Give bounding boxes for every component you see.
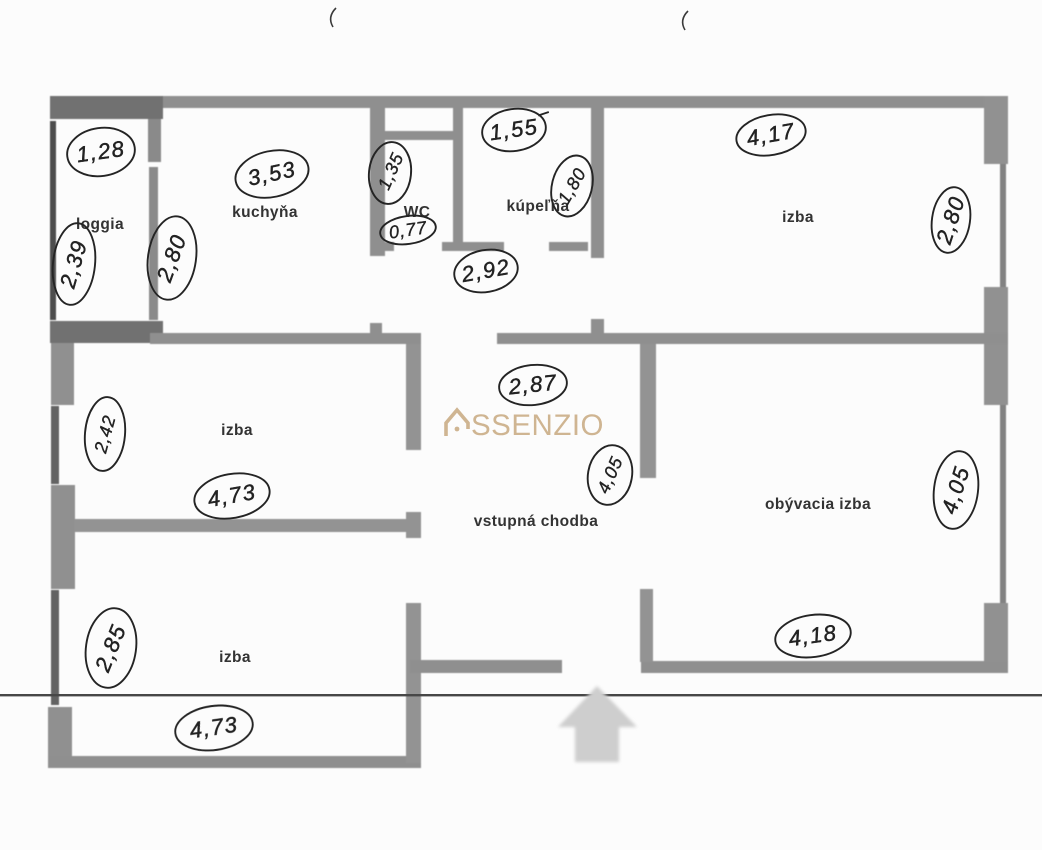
svg-text:izba: izba: [219, 649, 251, 666]
svg-text:SSENZIO: SSENZIO: [471, 409, 604, 442]
svg-text:kuchyňa: kuchyňa: [232, 204, 298, 221]
svg-text:2,87: 2,87: [506, 370, 558, 400]
svg-text:vstupná chodba: vstupná chodba: [474, 513, 598, 530]
svg-text:izba: izba: [221, 422, 253, 439]
svg-text:izba: izba: [782, 209, 814, 226]
svg-text:obývacia izba: obývacia izba: [765, 496, 871, 513]
